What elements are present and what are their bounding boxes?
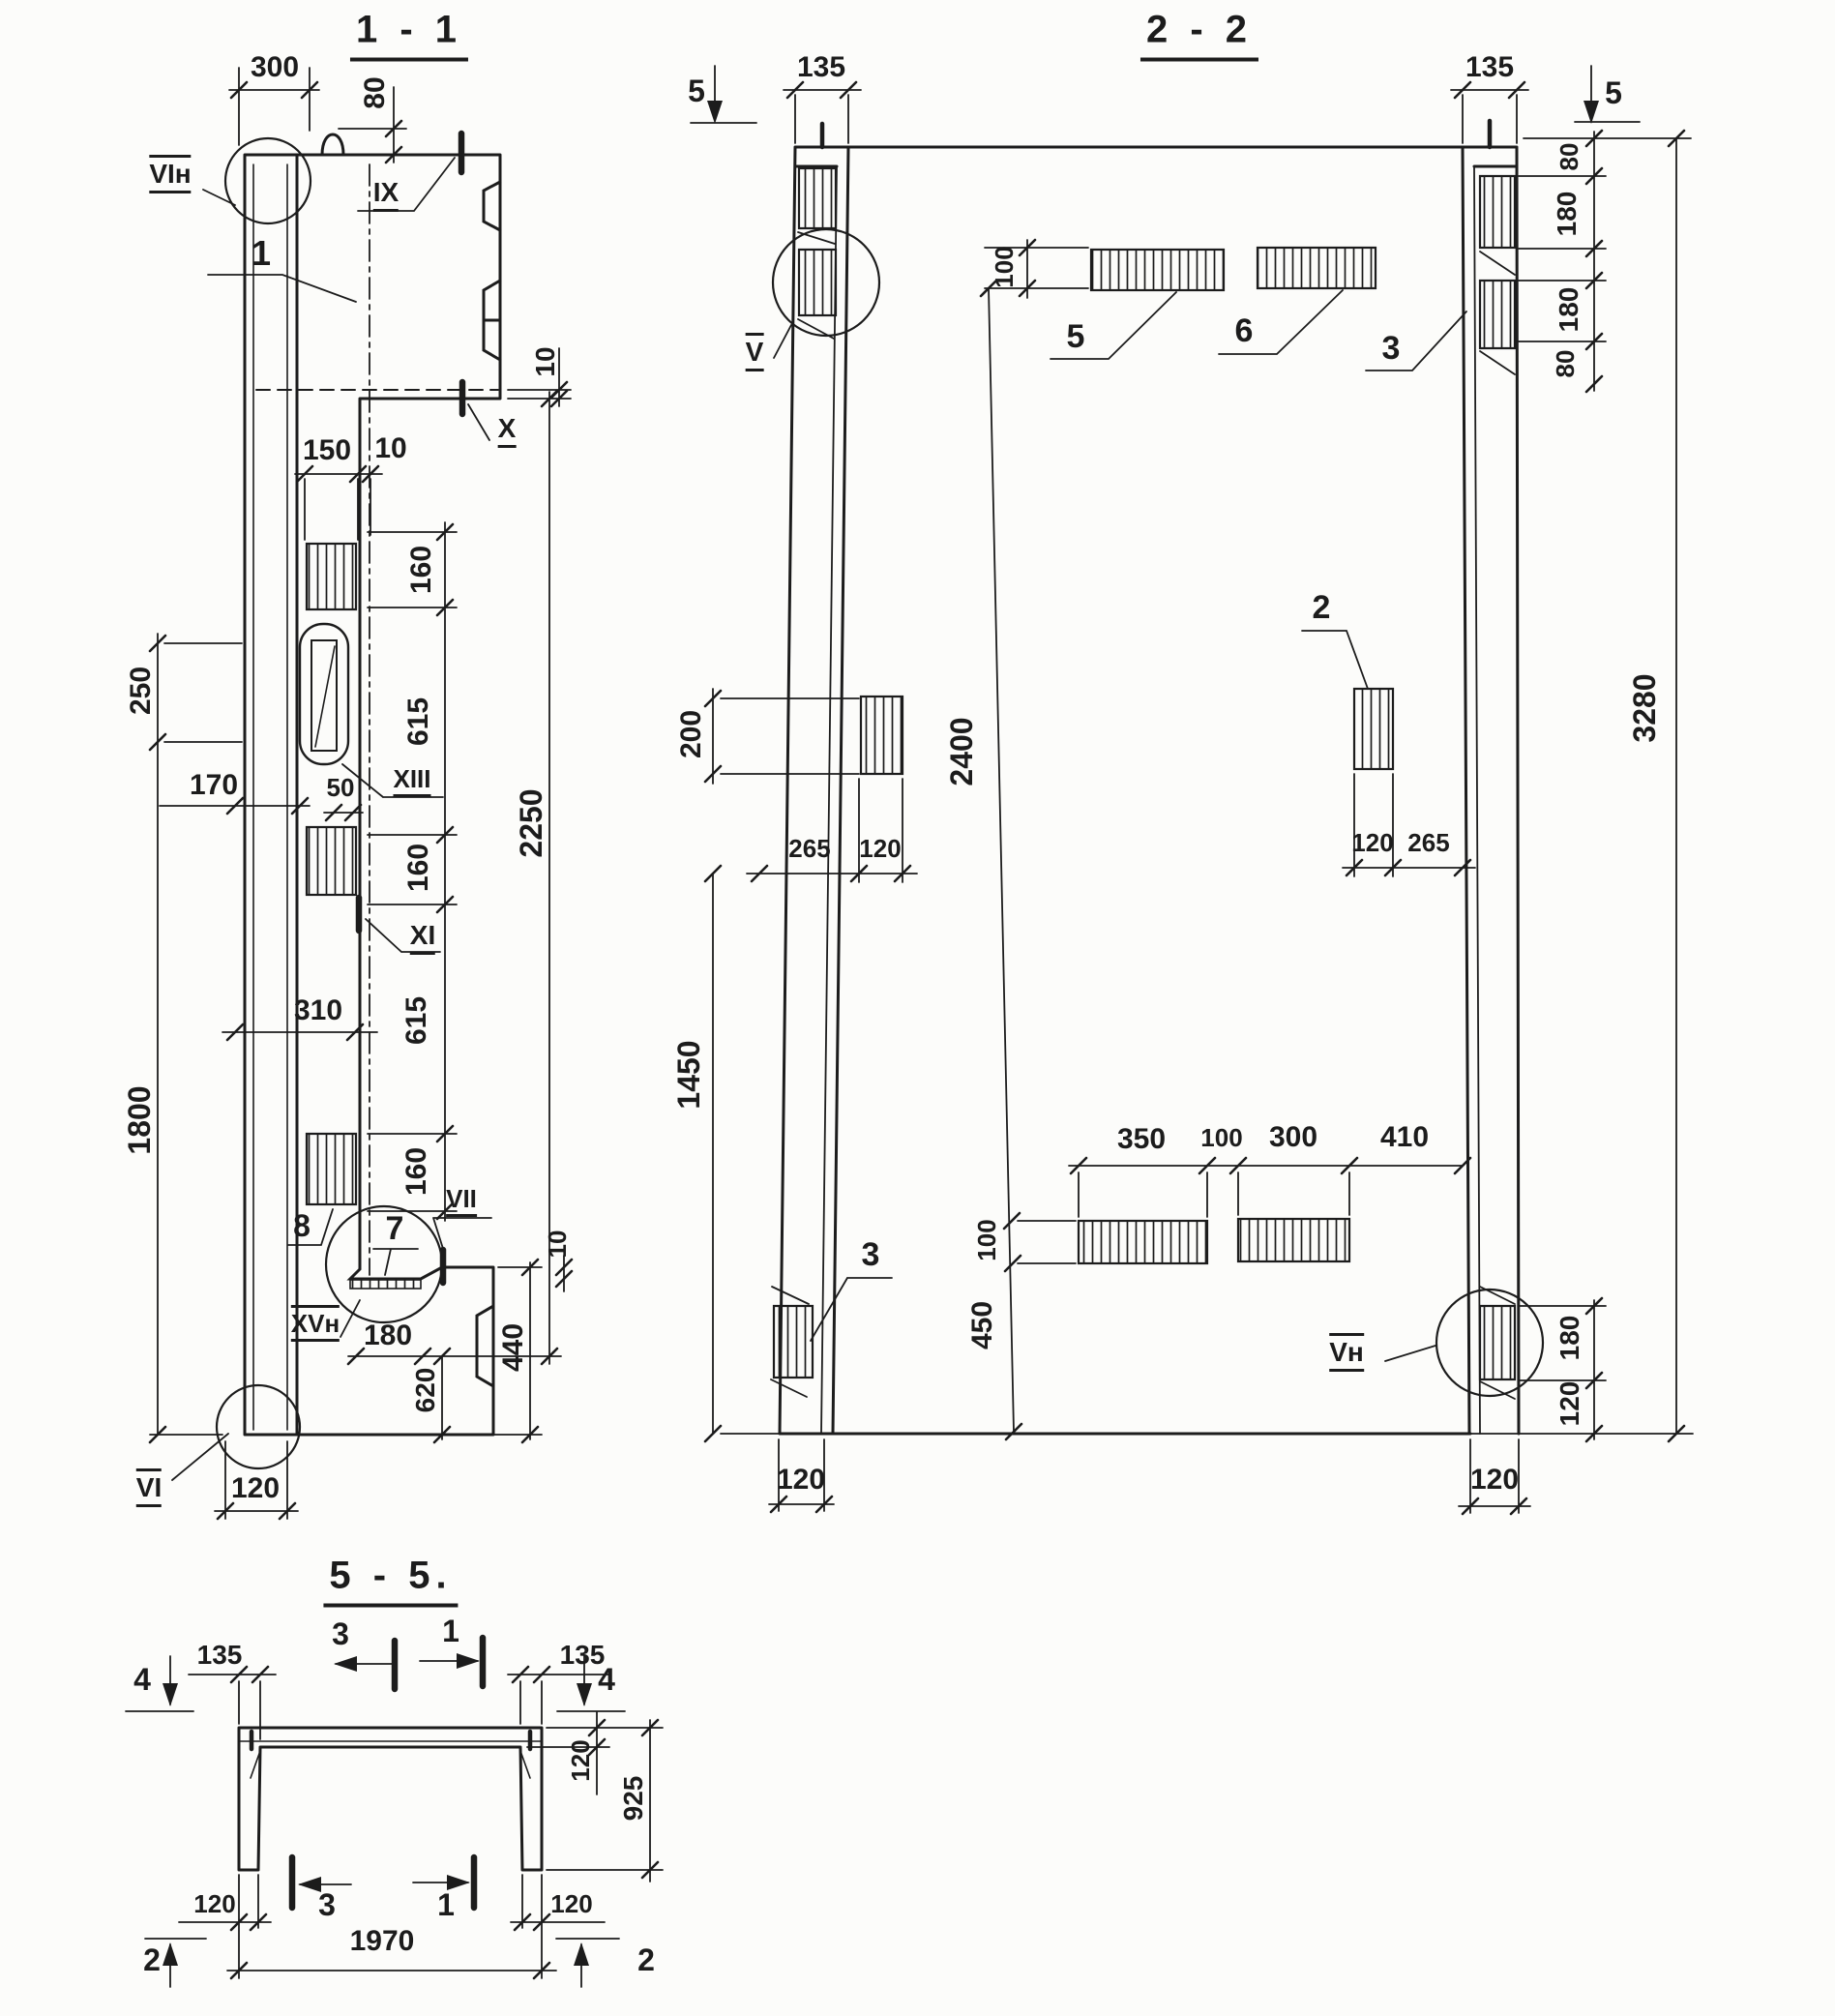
mark-4-right: 4 [598, 1664, 615, 1695]
dim-120-rib: 120 [231, 1474, 280, 1503]
cut-arrowheads-5-5 [163, 1653, 592, 1966]
embed-plate-hatch [799, 250, 836, 315]
label-V: V [746, 333, 764, 371]
dowel-stubs-bold [822, 121, 1490, 147]
dim-300-b: 300 [1269, 1123, 1317, 1152]
slot-outline [300, 624, 348, 764]
mark-3-bot: 3 [318, 1889, 336, 1920]
dim-10-bot: 10 [545, 1230, 570, 1259]
view-title-2-2: 2 - 2 [1140, 9, 1258, 62]
dim-120-rm: 120 [1351, 830, 1393, 855]
label-XI: XI [410, 922, 435, 955]
embed-strip-hatch [1258, 248, 1376, 288]
slot-diagonal [315, 646, 335, 747]
dim-100-top: 100 [991, 246, 1017, 287]
dim-160-1: 160 [407, 546, 436, 594]
dim-80-tr1: 80 [1556, 143, 1582, 171]
cut-bars-bold-5-5 [292, 1638, 483, 1908]
mark-1-bot: 1 [437, 1889, 455, 1920]
dim-120-wall-left: 120 [777, 1466, 825, 1495]
label-X: X [498, 415, 517, 448]
embed-plate-hatch [307, 827, 356, 895]
callout-5: 5 [1067, 320, 1085, 353]
label-VI-bot: VI [136, 1468, 162, 1507]
dim-ticks-5-5 [231, 1667, 658, 1978]
dim-120-flange: 120 [568, 1739, 593, 1781]
mark-1-top: 1 [442, 1616, 459, 1646]
embed-strip-hatch [1091, 250, 1224, 290]
dim-450: 450 [968, 1301, 997, 1349]
drawing-sheet: 1 - 1 2 - 2 5 - 5. VIн130080IX10X1501016… [0, 0, 1835, 2016]
dim-180-tr1: 180 [1554, 192, 1581, 237]
dim-1970: 1970 [350, 1927, 415, 1956]
embed-plate-hatch [1480, 176, 1515, 248]
dim-100-b1: 100 [1200, 1125, 1242, 1150]
dim-265-r: 265 [1407, 830, 1449, 855]
outline-5-5 [239, 1728, 542, 1870]
dim-440: 440 [499, 1323, 528, 1372]
callout-8: 8 [293, 1210, 311, 1241]
section-2-2-geometry [691, 66, 1693, 1514]
embed-strip-hatch [1079, 1221, 1207, 1263]
dim-170: 170 [190, 771, 238, 800]
dim-300: 300 [251, 53, 299, 82]
dim-615-1: 615 [404, 697, 433, 746]
cut-arrowheads-2-2 [707, 101, 1599, 124]
view-title-5-5: 5 - 5. [323, 1555, 458, 1608]
dim-310: 310 [294, 996, 342, 1025]
ledge-hatch [350, 1280, 421, 1289]
mark-4-left: 4 [133, 1664, 151, 1695]
dim-160-2: 160 [404, 844, 433, 892]
dim-150: 150 [303, 436, 351, 465]
dim-925: 925 [620, 1776, 647, 1822]
mark-2-left: 2 [143, 1944, 161, 1975]
label-VII: VII [446, 1186, 477, 1217]
label-XVn: XVн [291, 1305, 340, 1342]
dim-160-3: 160 [402, 1147, 431, 1196]
dim-1800: 1800 [124, 1085, 155, 1154]
dim-80: 80 [361, 76, 390, 108]
dim-180: 180 [364, 1321, 412, 1350]
embed-plate-hatch [861, 697, 903, 774]
dim-265-l: 265 [788, 836, 830, 861]
detail-circle-7 [326, 1206, 442, 1322]
embed-plate-hatch [1354, 689, 1393, 769]
callout-3-top: 3 [1382, 332, 1401, 365]
dim-2400: 2400 [946, 717, 977, 786]
callout-7: 7 [386, 1212, 404, 1245]
embed-plate-hatch [307, 544, 356, 609]
dim-120-wall-right: 120 [1470, 1466, 1519, 1495]
callout-6: 6 [1235, 314, 1254, 347]
callout-2: 2 [1313, 591, 1331, 624]
dim-620: 620 [412, 1368, 439, 1413]
dim-410: 410 [1380, 1123, 1429, 1152]
label-Vn: Vн [1329, 1333, 1364, 1372]
embed-plate-hatch [1480, 281, 1515, 348]
view-title-1-1: 1 - 1 [350, 9, 468, 62]
embed-plate-hatch [774, 1306, 813, 1378]
dim-180-tr2: 180 [1555, 287, 1583, 333]
label-XIII: XIII [393, 766, 430, 797]
callout-1: 1 [252, 236, 271, 271]
dim-100-b2: 100 [974, 1219, 999, 1260]
dim-135-right: 135 [1465, 53, 1514, 82]
mark-5-right: 5 [1605, 77, 1622, 108]
dim-135-l55: 135 [197, 1642, 243, 1669]
rebar-lines [253, 164, 287, 1430]
dim-615-2: 615 [402, 996, 431, 1045]
dim-ticks-2-2 [705, 82, 1684, 1514]
dim-120-bl: 120 [193, 1891, 235, 1916]
embed-strip-hatch [1238, 1219, 1349, 1261]
dim-120-br: 120 [1556, 1381, 1583, 1427]
dim-350: 350 [1117, 1125, 1166, 1154]
embed-plate-hatch [1480, 1306, 1515, 1379]
outline-1-1 [245, 134, 500, 1435]
dim-120-br55: 120 [550, 1891, 592, 1916]
mark-3-top: 3 [332, 1618, 349, 1649]
mark-2-right: 2 [637, 1944, 655, 1975]
embed-plate-hatch [307, 1134, 356, 1204]
callout-3-bot: 3 [862, 1238, 880, 1271]
embed-plate-hatch [799, 168, 836, 228]
dim-120-lm: 120 [859, 836, 901, 861]
dim-50: 50 [327, 775, 355, 800]
dim-10-top: 10 [532, 346, 559, 376]
dim-250: 250 [127, 667, 156, 715]
dim-3280: 3280 [1629, 673, 1660, 742]
dim-2250: 2250 [516, 788, 547, 857]
dim-1450: 1450 [673, 1040, 704, 1109]
mark-5-left: 5 [688, 75, 705, 106]
dim-180-br: 180 [1556, 1316, 1583, 1361]
label-IX: IX [373, 179, 399, 212]
dim-80-tr2: 80 [1553, 350, 1578, 378]
dim-10-mid: 10 [374, 434, 406, 463]
dim-135-left: 135 [797, 53, 845, 82]
label-VIn-top: VIн [149, 155, 191, 193]
dim-200: 200 [677, 710, 706, 758]
